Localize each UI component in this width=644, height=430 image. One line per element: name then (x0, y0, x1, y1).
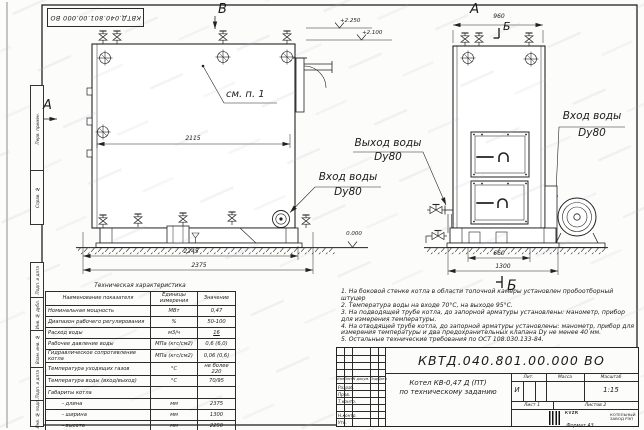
note-item: 5. Остальные технические требования по О… (341, 337, 636, 344)
row-tkontr: Т.контр. (338, 399, 356, 404)
table-row: Рабочее давление водыМПа (кгс/см2)0,6 (6… (46, 339, 236, 350)
inlet-front-label: Вход воды (556, 111, 628, 122)
margin-cell-podp-data-2: Подп. и дата (30, 367, 44, 402)
note-item: 3. На подводящей трубе котла, до запорно… (341, 310, 636, 324)
dim-2115: 2115 (172, 136, 214, 142)
row-nkontr: Н.контр. (338, 413, 357, 418)
col-name: Наименование показателя (46, 291, 151, 305)
table-row: Расход водым3/ч16 (46, 327, 236, 338)
margin-cell-podp-data-1: Подп. и дата (30, 262, 44, 299)
mass-label: Масса (546, 375, 584, 380)
table-row: Гидравлическое сопротивление котлаМПа (к… (46, 350, 236, 363)
table-row: Температура воды (вход/выход)°С70/95 (46, 376, 236, 387)
outlet-dy: Dy80 (350, 152, 426, 163)
view-arrow-letter-v: В (218, 3, 227, 17)
row-prov: Пров. (338, 392, 350, 397)
margin-cell-vzam-inv: Взам. инв. № (30, 330, 44, 369)
margin-cell-inv-podl: Инв. № подл. (30, 400, 44, 427)
lit-value: И (511, 386, 523, 394)
col-data: Дата (378, 377, 385, 381)
front-view-title: А (470, 2, 479, 16)
col-value: Значение (198, 291, 236, 305)
col-podp: Подп. (370, 377, 378, 381)
elevation-zero: 0.000 (341, 232, 367, 238)
col-izm: Изм (337, 377, 344, 381)
elevation-2250: +2.250 (340, 19, 360, 25)
title-block: Изм Лист N докум. Подп. Дата Разраб. Про… (336, 347, 639, 427)
scale-value: 1:15 (584, 386, 638, 394)
designation: КВТД.040.801.00.000 ВО (385, 348, 638, 373)
table-row: Номинальная мощностьМВт0,47 (46, 305, 236, 316)
section-letter-b-top: Б (503, 21, 511, 33)
outlet-label: Выход воды (350, 138, 426, 149)
inlet-side-dy: Dy80 (312, 187, 384, 198)
drawing-sheet: КВТД.040.801.00.000 ВО Перв. примен. Спр… (0, 0, 644, 430)
inlet-side-label: Вход воды (312, 172, 384, 183)
inlet-front-dy: Dy80 (556, 128, 628, 139)
top-corner-stamp: КВТД.040.801.00.000 ВО (47, 8, 144, 27)
margin-cell-sprav-no: Справ. № (30, 170, 44, 225)
technical-notes: 1. На боковой стенке котла в области топ… (341, 289, 636, 344)
dim-1300: 1300 (482, 264, 524, 270)
col-units: Единицы измерения (151, 291, 198, 305)
document-title: Котел КВ-0,47 Д (ПТ) по техническому зад… (385, 379, 511, 397)
margin-cell-inv-dubl: Инв. № дубл. (30, 297, 44, 332)
kvzr-logo: KVZR (565, 410, 578, 415)
scale-label: Масштаб (584, 375, 638, 380)
company-name: КОТЕЛЬНЫЙ ЗАВОД РЭП (610, 413, 636, 422)
table-header: Наименование показателя Единицы измерени… (46, 291, 236, 305)
callout-see-item-1: см. п. 1 (226, 90, 265, 101)
col-list: Лист (344, 377, 352, 381)
format-label: Формат А3 (557, 424, 603, 429)
table-row: Диапазон рабочего регулирования%50-100 (46, 316, 236, 327)
table-row: - высотамм2250 (46, 421, 236, 430)
row-utv: Утв. (338, 420, 347, 425)
row-razrab: Разраб. (338, 385, 354, 390)
table-title: Техническая характеристика (45, 283, 235, 289)
elevation-2100: +2.100 (362, 31, 382, 37)
sheets-cell: Листов 2 (553, 403, 638, 408)
table-row: - ширинамм1300 (46, 409, 236, 420)
lit-label: Лит. (511, 375, 546, 380)
table-row: Температура уходящих газов°Сне более 220 (46, 363, 236, 376)
col-ndoc: N докум. (352, 377, 370, 381)
sheet-cell: Лист 1 (511, 403, 553, 408)
dim-660: 660 (478, 251, 520, 257)
table-row: Габариты котла (46, 387, 236, 398)
table-row: - длинамм2375 (46, 398, 236, 409)
kvzr-barcode-mark (549, 411, 562, 425)
dim-2245: 2245 (170, 249, 212, 255)
tech-table: Наименование показателя Единицы измерени… (45, 291, 236, 430)
dim-960: 960 (487, 14, 511, 20)
dim-2375: 2375 (178, 263, 220, 269)
stamp-designation: КВТД.040.801.00.000 ВО (50, 14, 141, 22)
view-arrow-letter-a: А (43, 99, 52, 113)
note-item: 1. На боковой стенке котла в области топ… (341, 289, 636, 303)
margin-cell-perv-primen: Перв. примен. (30, 85, 44, 172)
tech-characteristics: Техническая характеристика Наименование … (45, 283, 235, 430)
